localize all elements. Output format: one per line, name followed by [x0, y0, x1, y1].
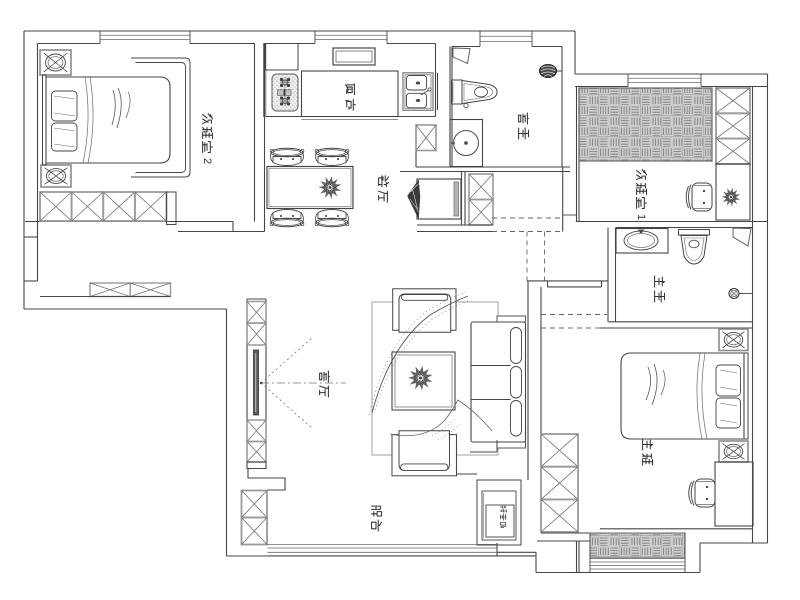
svg-text:2: 2	[201, 158, 213, 164]
svg-text:1: 1	[635, 214, 647, 220]
